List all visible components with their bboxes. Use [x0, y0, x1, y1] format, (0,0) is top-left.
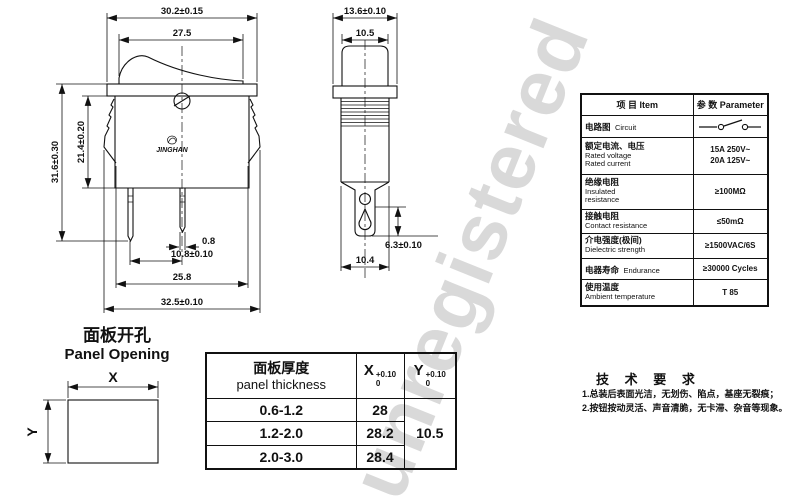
spec-header-row: 项 目 Item 参 数 Parameter: [581, 94, 768, 115]
technical-requirements: 技 术 要 求 1.总装后表面光洁，无划伤、陷点，基座无裂痕； 2.按钮按动灵活…: [582, 369, 798, 416]
dim-clip-span: 25.8: [173, 272, 192, 283]
x-value: 28.2: [356, 421, 404, 445]
dielectric-value: ≥1500VAC/6S: [693, 233, 768, 258]
circuit-label-en: Circuit: [615, 123, 636, 132]
dim-pin-thickness: 0.8: [202, 236, 215, 247]
panel-cutout-rect: [68, 400, 158, 463]
y-symbol: Y: [414, 362, 424, 379]
spec-row-rated: 额定电流、电压 Rated voltage Rated current 15A …: [581, 137, 768, 174]
spec-header-parameter: 参 数 Parameter: [693, 94, 768, 115]
rated-label-en2: Rated current: [585, 160, 690, 169]
contact-label-en: Contact resistance: [585, 222, 690, 231]
panel-y-label: Y: [24, 427, 40, 437]
endurance-value: ≥30000 Cycles: [693, 258, 768, 279]
thickness-range: 2.0-3.0: [206, 445, 356, 469]
temperature-label-en: Ambient temperature: [585, 293, 690, 302]
panel-thickness-table: 面板厚度 panel thickness X+0.100 Y+0.100 0.6…: [205, 352, 457, 470]
spec-header-item: 项 目 Item: [581, 94, 693, 115]
thickness-header-zh: 面板厚度: [209, 359, 354, 377]
rocker-actuator: [119, 56, 243, 84]
endurance-label-en: Endurance: [623, 266, 659, 275]
x-value: 28: [356, 398, 404, 421]
circuit-symbol-icon: [697, 118, 763, 132]
spec-row-dielectric: 介电强度(极间) Dielectric strength ≥1500VAC/6S: [581, 233, 768, 258]
spec-row-contact: 接触电阻 Contact resistance ≤50mΩ: [581, 209, 768, 233]
y-dimension-header: Y+0.100: [404, 353, 456, 398]
dim-flange-width: 13.6±0.10: [344, 6, 386, 17]
y-tol-lower: 0: [426, 380, 446, 389]
thickness-row: 0.6-1.2 28 10.5: [206, 398, 456, 421]
panel-opening-title-en: Panel Opening: [56, 346, 178, 364]
temperature-value: T 85: [693, 279, 768, 306]
left-clip: [104, 99, 116, 163]
rated-value-2: 20A 125V~: [697, 156, 765, 166]
front-view: JINGHAN 30.2±0.15 27.5 21.4±0.20: [50, 6, 260, 313]
dim-body-width: 10.4: [356, 255, 375, 266]
panel-x-label: X: [108, 369, 118, 385]
dim-rocker-width: 27.5: [173, 28, 192, 39]
x-tol-lower: 0: [376, 380, 396, 389]
dim-total-height: 31.6±0.30: [50, 141, 61, 183]
thickness-header-row: 面板厚度 panel thickness X+0.100 Y+0.100: [206, 353, 456, 398]
insulation-value: ≥100MΩ: [693, 174, 768, 209]
dim-terminal-length: 6.3±0.10: [385, 240, 422, 251]
thickness-header-en: panel thickness: [209, 377, 354, 393]
x-value: 28.4: [356, 445, 404, 469]
rated-value-1: 15A 250V~: [697, 145, 765, 155]
thickness-range: 0.6-1.2: [206, 398, 356, 421]
center-terminal: [180, 188, 185, 232]
tech-requirement-1: 1.总装后表面光洁，无划伤、陷点，基座无裂痕；: [582, 388, 798, 402]
panel-opening-title: 面板开孔 Panel Opening: [56, 326, 178, 364]
logo-text: JINGHAN: [156, 147, 188, 154]
dim-pin-spacing: 10.8±0.10: [171, 249, 213, 260]
spec-row-temperature: 使用温度 Ambient temperature T 85: [581, 279, 768, 306]
tech-requirement-2: 2.按钮按动灵活、声音清脆，无卡滞、杂音等现象。: [582, 402, 798, 416]
logo-swirl: [168, 138, 176, 143]
panel-opening-drawing: X Y: [24, 369, 158, 463]
thickness-range: 1.2-2.0: [206, 421, 356, 445]
tech-requirements-title: 技 术 要 求: [596, 369, 798, 388]
x-dimension-header: X+0.100: [356, 353, 404, 398]
drawing-sheet: unregistered JINGHAN: [0, 0, 800, 499]
y-value: 10.5: [404, 398, 456, 469]
dim-body-height: 21.4±0.20: [76, 121, 87, 163]
right-clip: [248, 99, 260, 163]
spec-table: 项 目 Item 参 数 Parameter 电路图 Circuit 额定电: [580, 93, 769, 307]
side-view: 13.6±0.10 10.5 6.3±0.10 10.4: [333, 6, 438, 278]
contact-value: ≤50mΩ: [693, 209, 768, 233]
spec-row-insulation: 绝缘电阻 Insulated resistance ≥100MΩ: [581, 174, 768, 209]
insulation-label-en2: resistance: [585, 196, 690, 205]
spec-row-circuit: 电路图 Circuit: [581, 115, 768, 137]
dim-top-width: 30.2±0.15: [161, 6, 204, 17]
spec-row-endurance: 电器寿命 Endurance ≥30000 Cycles: [581, 258, 768, 279]
circuit-label-zh: 电路图: [585, 122, 611, 132]
dim-overall-width: 32.5±0.10: [161, 297, 203, 308]
panel-opening-title-zh: 面板开孔: [56, 326, 178, 346]
x-symbol: X: [364, 362, 374, 379]
endurance-label-zh: 电器寿命: [585, 265, 619, 275]
dielectric-label-en: Dielectric strength: [585, 246, 690, 255]
dim-rocker-side-width: 10.5: [356, 28, 375, 39]
